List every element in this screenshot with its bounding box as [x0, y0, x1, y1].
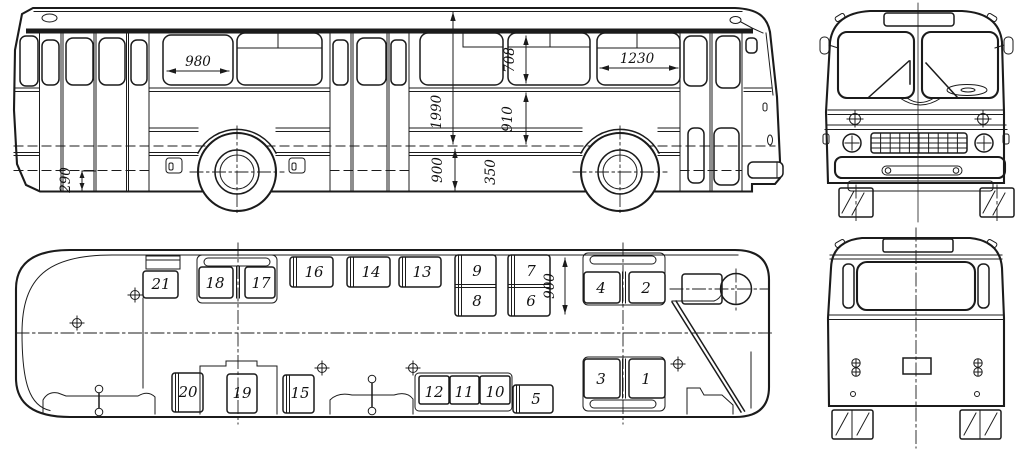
- license-plate: [903, 358, 931, 374]
- seat-label-10: 10: [485, 383, 505, 401]
- seat-label-21: 21: [150, 275, 170, 293]
- dim-label-910: 910: [500, 106, 516, 132]
- rear-view: [828, 228, 1004, 448]
- rear-door: [40, 34, 150, 191]
- headlamp-side-icon: [768, 135, 773, 145]
- front-door: [680, 34, 742, 191]
- seat-label-9: 9: [472, 262, 482, 280]
- dim-label-1230: 1230: [620, 51, 655, 67]
- plan-view: 900 1 2 3 4 5 6 7 8 9 10 11 12 13 14 15 …: [16, 243, 772, 424]
- seat-label-12: 12: [424, 383, 443, 401]
- dim-label-1990: 1990: [429, 94, 445, 129]
- dim-label-350: 350: [483, 159, 499, 185]
- rear-corner-window-left: [843, 264, 854, 308]
- front-bumper-side: [748, 162, 783, 178]
- seat-label-8: 8: [472, 292, 482, 310]
- seat-number-labels: 1 2 3 4 5 6 7 8 9 10 11 12 13 14 15 16 1…: [150, 262, 650, 408]
- dim-label-290: 290: [58, 167, 74, 194]
- service-hatch: [289, 158, 305, 173]
- seat-label-2: 2: [640, 279, 651, 297]
- marker-lamp-icon: [834, 13, 845, 23]
- seat-label-4: 4: [595, 279, 606, 297]
- rear-corner-window-right: [978, 264, 989, 308]
- windscreen-right: [922, 32, 998, 98]
- seat-label-6: 6: [526, 292, 536, 310]
- front-bumper: [835, 157, 1005, 191]
- mirror-right-icon: [1004, 37, 1013, 54]
- seat-label-3: 3: [596, 370, 606, 388]
- rear-wheels: [832, 410, 1001, 439]
- dim-label-980: 980: [185, 54, 211, 70]
- side-view: 980 1230 1990 708 910 900 350 290: [14, 8, 783, 216]
- windscreen-left: [838, 32, 914, 98]
- stanchion-markers: [70, 288, 685, 375]
- seat-label-11: 11: [454, 383, 473, 401]
- bus-blueprint-drawing: 980 1230 1990 708 910 900 350 290: [0, 0, 1024, 452]
- seat-label-5: 5: [531, 390, 541, 408]
- front-vent-window: [746, 38, 757, 53]
- rear-cabinet: [146, 256, 180, 269]
- seat-label-20: 20: [177, 383, 198, 401]
- marker-lamp-icon: [986, 13, 997, 23]
- seat-label-19: 19: [232, 384, 252, 402]
- rear-wheel: [190, 126, 284, 216]
- seat-label-18: 18: [205, 274, 224, 292]
- service-hatch: [166, 158, 182, 173]
- dim-label-900-plan: 900: [542, 273, 558, 299]
- rear-destination-sign: [883, 239, 953, 252]
- roof-marker-lamp-icon: [42, 14, 57, 22]
- front-view: [820, 3, 1014, 222]
- bus-blueprint-page: 980 1230 1990 708 910 900 350 290: [0, 0, 1024, 452]
- seat-label-13: 13: [412, 263, 431, 281]
- middle-door: [330, 34, 409, 191]
- rear-door-well: [43, 385, 155, 416]
- front-wheel: [573, 126, 667, 216]
- seat-label-7: 7: [526, 262, 536, 280]
- mirror-icon: [730, 17, 741, 24]
- front-wheels: [839, 185, 1014, 221]
- destination-sign: [884, 13, 954, 26]
- grille: [871, 133, 967, 153]
- dim-label-900-side: 900: [430, 157, 446, 183]
- plan-dimension-900: 900: [542, 258, 568, 314]
- seat-label-15: 15: [290, 384, 309, 402]
- dim-label-708: 708: [502, 47, 518, 73]
- front-door-well: [672, 301, 751, 414]
- seat-label-1: 1: [641, 370, 651, 388]
- defroster-vent: [947, 85, 987, 96]
- plan-body-outline: [16, 250, 769, 417]
- seat-label-16: 16: [304, 263, 324, 281]
- seat-label-17: 17: [251, 274, 271, 292]
- mirror-left-icon: [820, 37, 829, 54]
- middle-door-well: [330, 375, 413, 415]
- seat-label-14: 14: [361, 263, 380, 281]
